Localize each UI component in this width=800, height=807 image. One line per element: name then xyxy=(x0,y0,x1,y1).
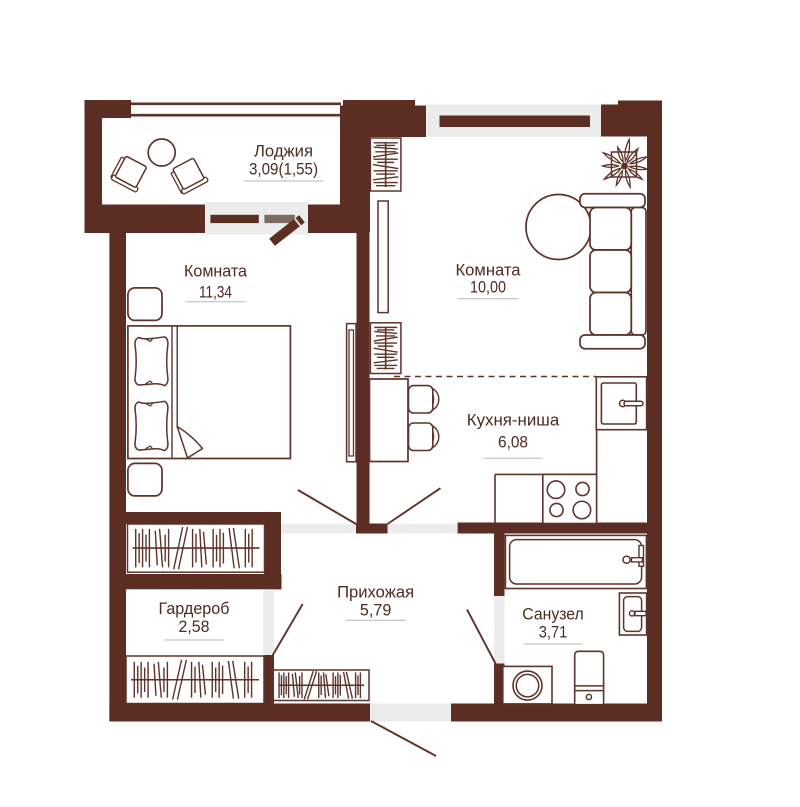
svg-text:Санузел: Санузел xyxy=(522,606,584,624)
svg-text:Гардероб: Гардероб xyxy=(159,600,230,618)
svg-text:Прихожая: Прихожая xyxy=(337,584,414,602)
svg-text:Лоджия: Лоджия xyxy=(254,143,313,161)
svg-text:Комната: Комната xyxy=(456,262,522,280)
svg-text:3,71: 3,71 xyxy=(539,624,568,642)
svg-text:5,79: 5,79 xyxy=(360,602,392,620)
svg-text:11,34: 11,34 xyxy=(199,284,232,302)
svg-text:Кухня-ниша: Кухня-ниша xyxy=(467,412,560,430)
svg-text:3,09(1,55): 3,09(1,55) xyxy=(249,161,318,179)
svg-text:6,08: 6,08 xyxy=(498,434,528,452)
svg-text:Комната: Комната xyxy=(184,263,248,281)
svg-text:10,00: 10,00 xyxy=(470,279,506,297)
svg-text:2,58: 2,58 xyxy=(179,618,210,636)
